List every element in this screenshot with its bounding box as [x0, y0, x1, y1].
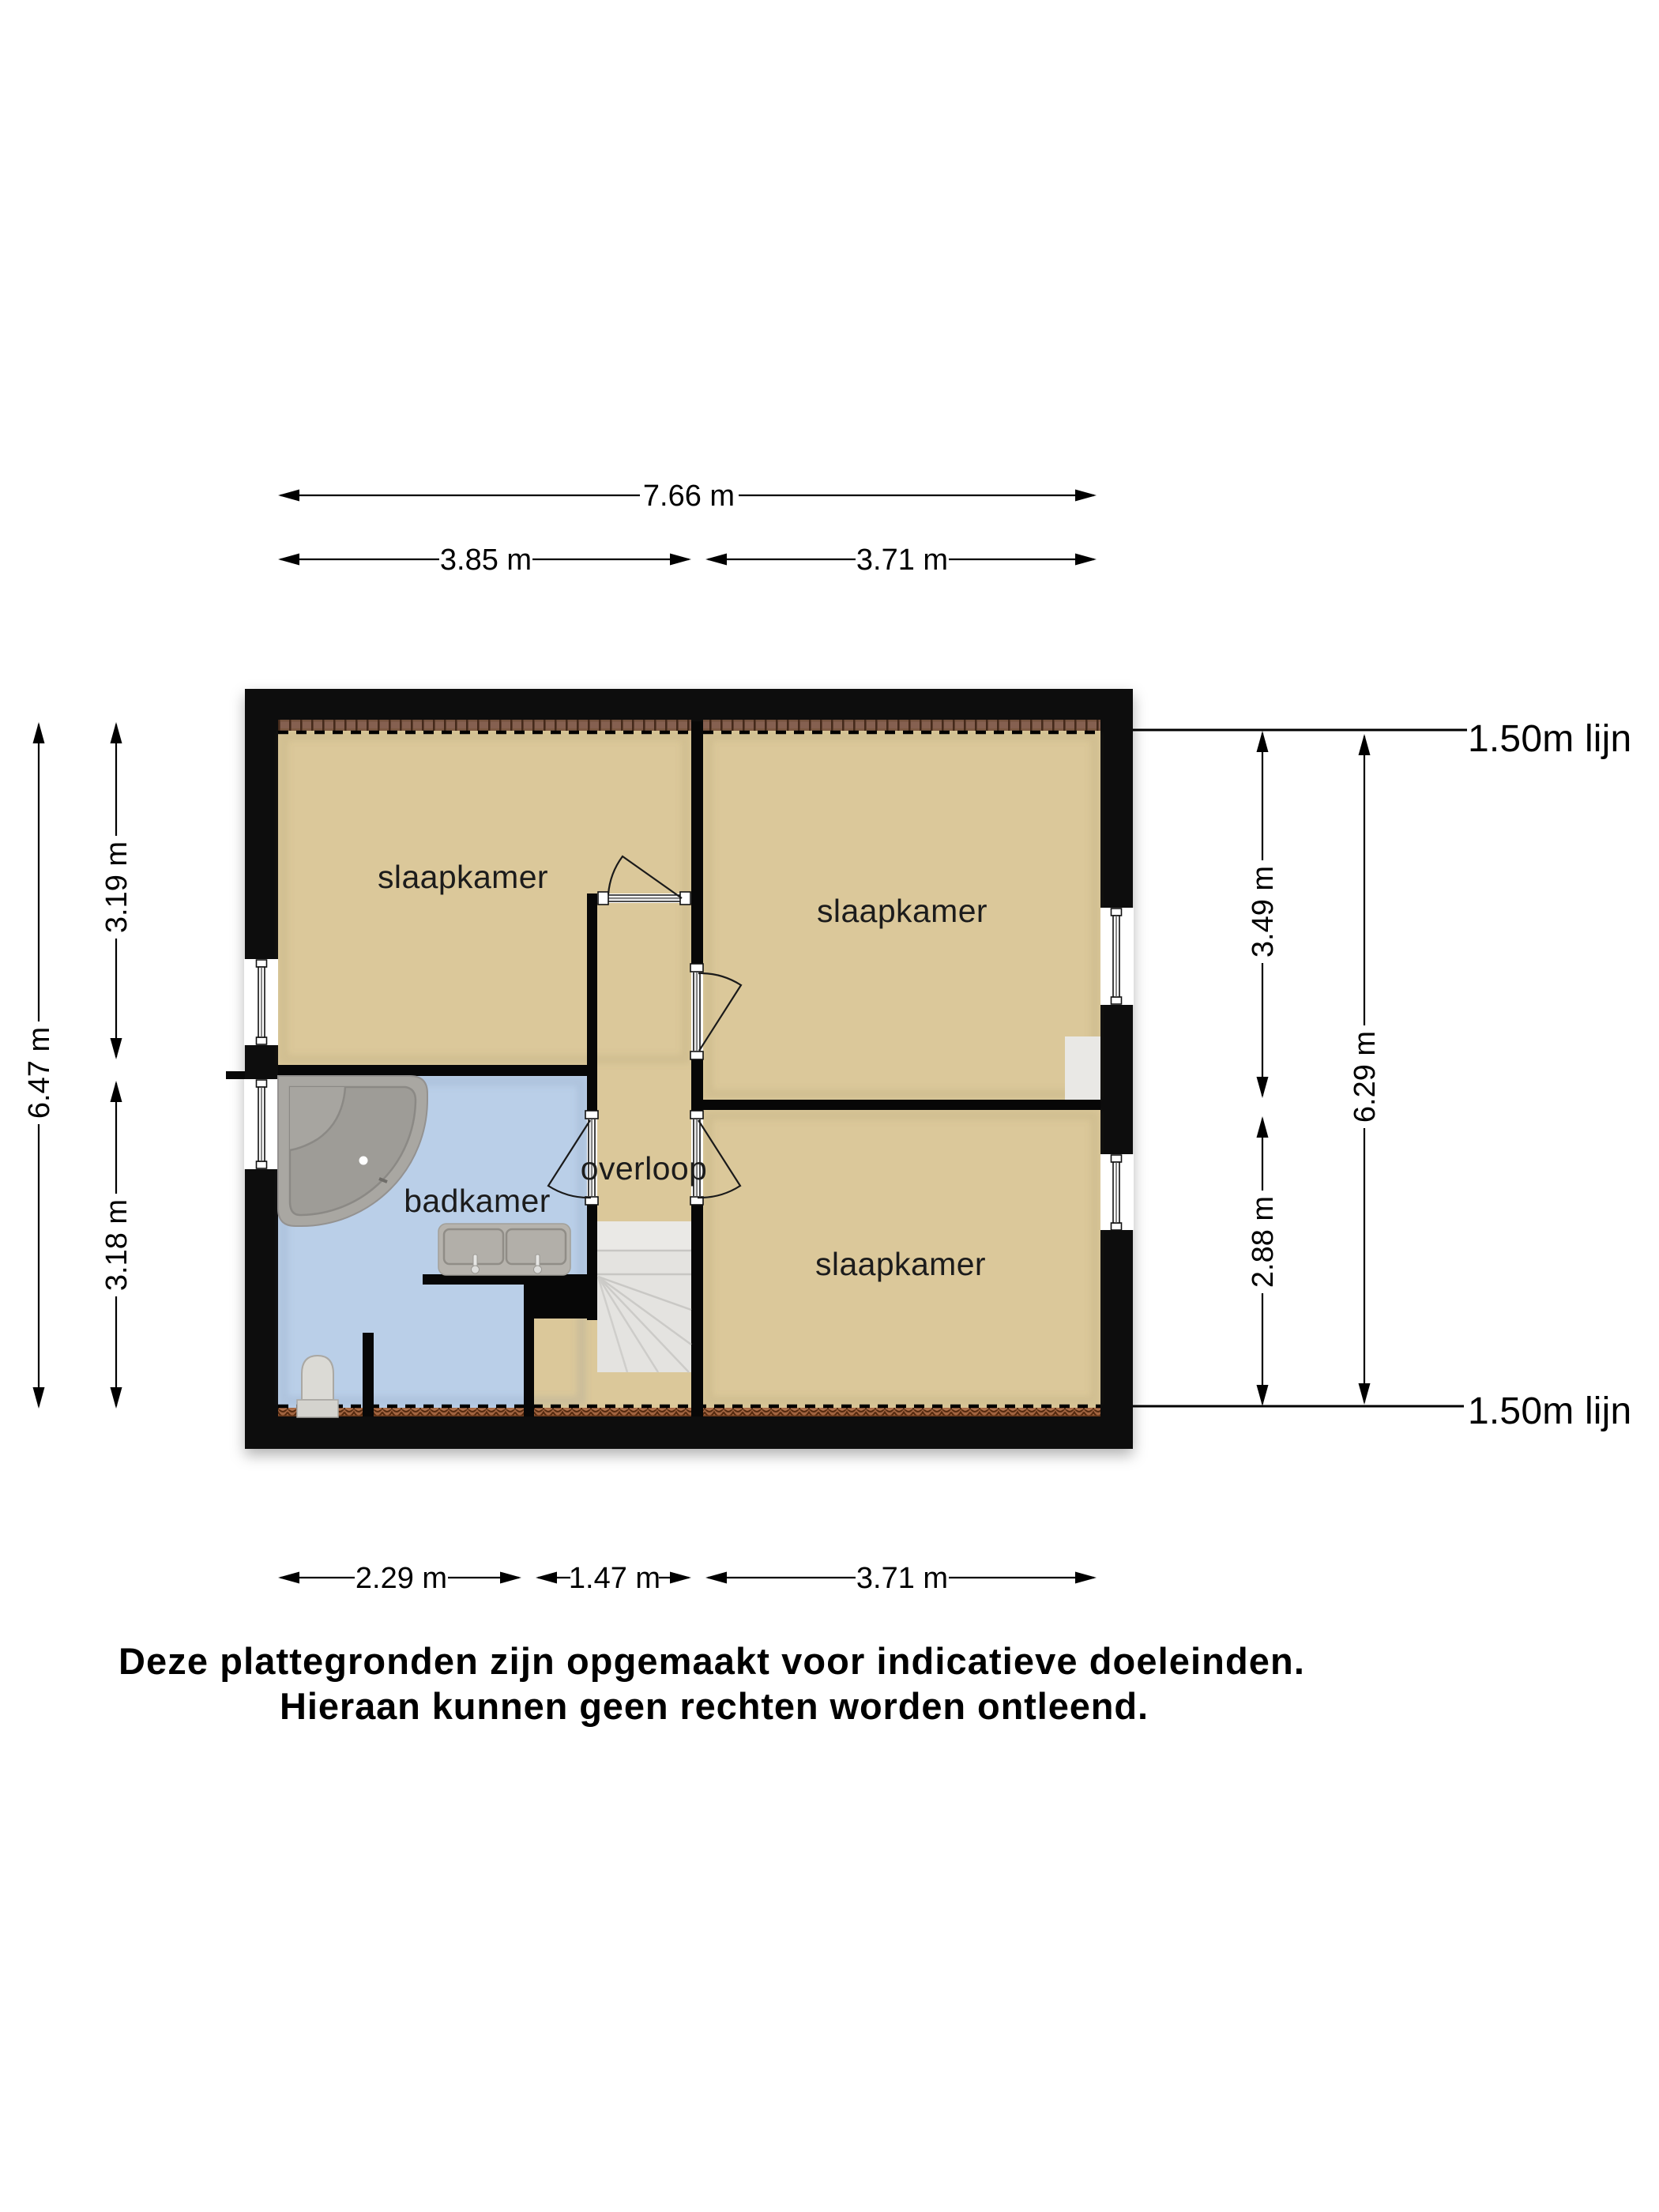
svg-text:2.88 m: 2.88 m: [1247, 1196, 1280, 1288]
svg-text:1.50m lijn: 1.50m lijn: [1468, 1390, 1631, 1432]
svg-text:badkamer: badkamer: [404, 1183, 551, 1219]
svg-text:1.50m lijn: 1.50m lijn: [1468, 718, 1631, 760]
svg-text:3.18 m: 3.18 m: [100, 1199, 134, 1291]
svg-text:Hieraan kunnen geen rechten wo: Hieraan kunnen geen rechten worden ontle…: [280, 1685, 1149, 1727]
svg-text:1.47 m: 1.47 m: [569, 1562, 660, 1595]
svg-text:slaapkamer: slaapkamer: [378, 859, 548, 895]
svg-text:3.49 m: 3.49 m: [1247, 866, 1280, 957]
svg-text:Deze plattegronden zijn opgema: Deze plattegronden zijn opgemaakt voor i…: [118, 1640, 1305, 1682]
svg-text:6.29 m: 6.29 m: [1349, 1031, 1382, 1123]
svg-text:3.71 m: 3.71 m: [856, 1562, 948, 1595]
svg-text:2.29 m: 2.29 m: [355, 1562, 447, 1595]
svg-text:3.71 m: 3.71 m: [856, 544, 948, 577]
svg-text:3.85 m: 3.85 m: [440, 544, 532, 577]
svg-text:3.19 m: 3.19 m: [100, 841, 134, 933]
svg-text:slaapkamer: slaapkamer: [817, 893, 987, 929]
svg-text:slaapkamer: slaapkamer: [815, 1246, 986, 1282]
svg-text:overloop: overloop: [581, 1150, 707, 1187]
svg-text:6.47 m: 6.47 m: [23, 1027, 56, 1119]
svg-text:7.66 m: 7.66 m: [643, 480, 735, 513]
